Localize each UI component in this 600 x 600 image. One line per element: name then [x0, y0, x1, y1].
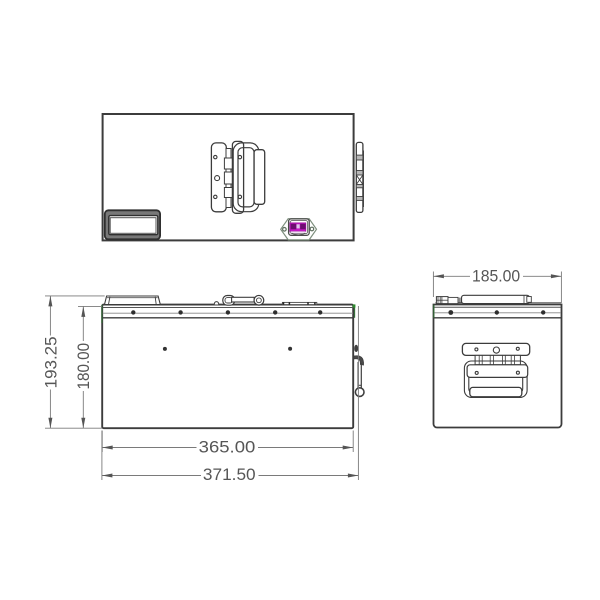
svg-text:185.00: 185.00	[472, 267, 520, 285]
svg-text:193.25: 193.25	[43, 336, 61, 388]
svg-text:365.00: 365.00	[199, 439, 256, 457]
svg-text:371.50: 371.50	[203, 466, 256, 484]
svg-text:180.00: 180.00	[75, 343, 93, 390]
